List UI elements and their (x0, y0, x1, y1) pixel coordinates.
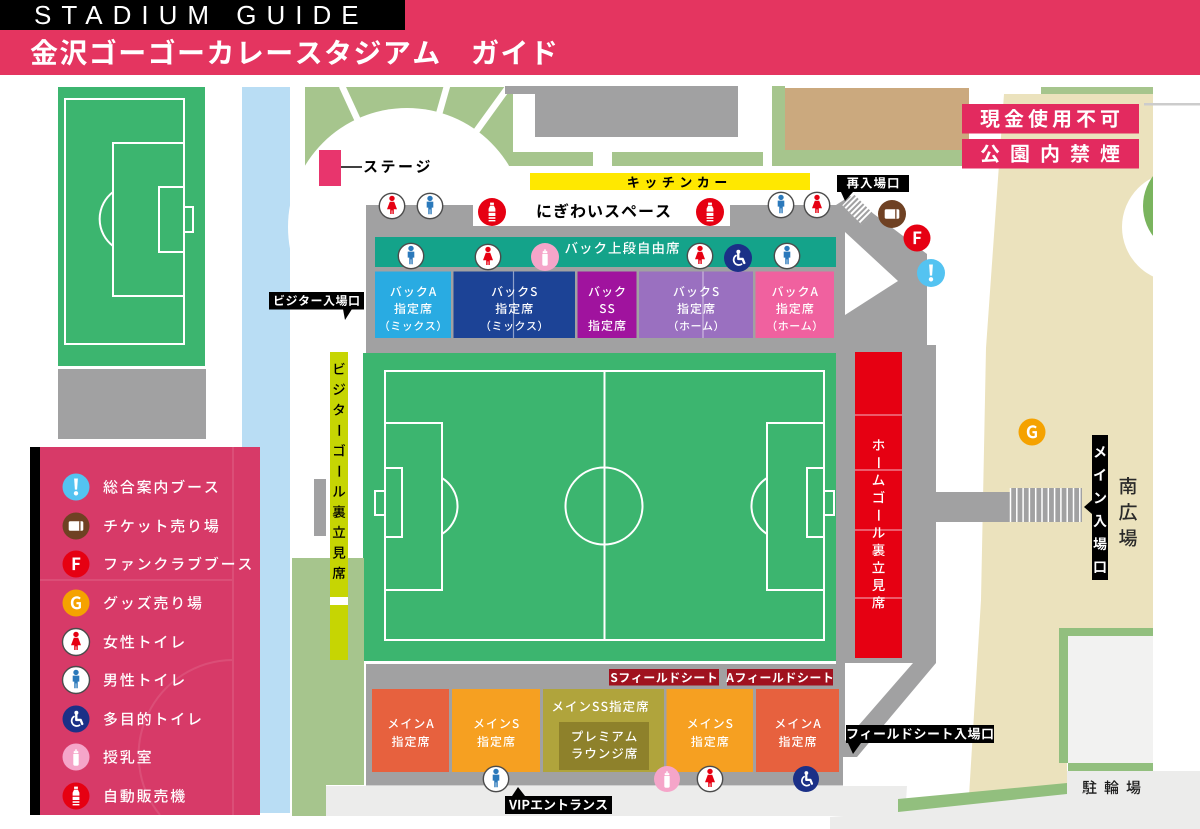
svg-text:STADIUM GUIDE: STADIUM GUIDE (34, 0, 369, 30)
